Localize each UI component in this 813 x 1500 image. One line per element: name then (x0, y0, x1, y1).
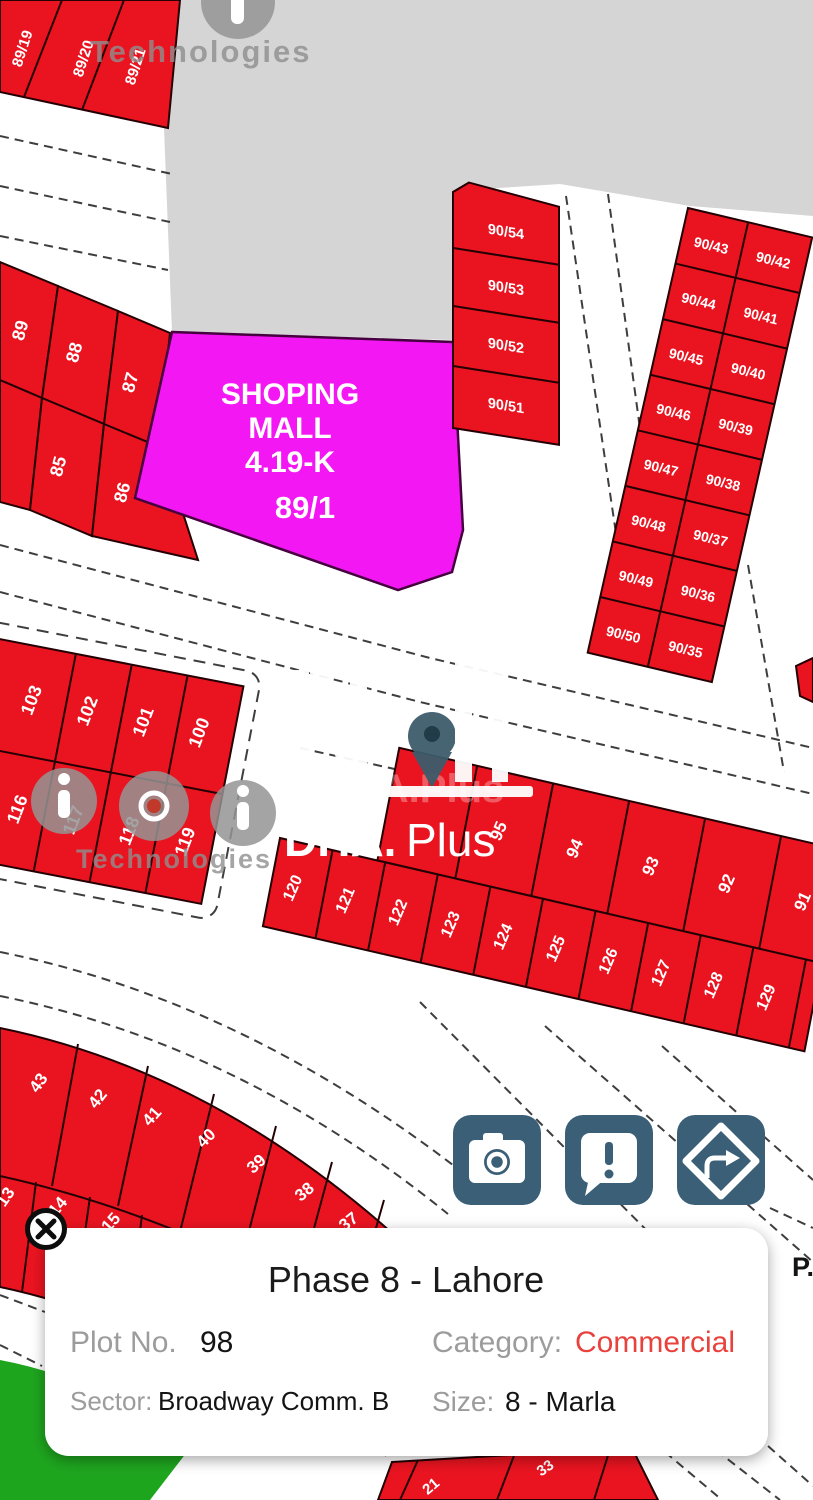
watermark-text: Technologies (76, 844, 272, 874)
plot-column-90-50s[interactable]: 90/54 90/53 90/52 90/51 (453, 180, 559, 445)
plot-no-label: Plot No. (70, 1326, 177, 1359)
dha-wordmark-light: Plus (406, 814, 495, 866)
watermark-text: Technologies (90, 34, 312, 69)
category-value: Commercial (575, 1326, 735, 1359)
plot-info-card: Phase 8 - Lahore Plot No. 98 Category: C… (45, 1228, 768, 1456)
map-screen: 89/19 89/20 89/21 89 88 87 85 86 SHOPING… (0, 0, 813, 1500)
close-card-button[interactable] (28, 1211, 65, 1248)
plot-map[interactable]: 89/19 89/20 89/21 89 88 87 85 86 SHOPING… (0, 0, 813, 1500)
size-value: 8 - Marla (505, 1386, 616, 1417)
sector-value: Broadway Comm. B (158, 1386, 389, 1416)
mall-label: SHOPING (221, 378, 359, 411)
mall-size-label: 4.19-K (245, 446, 335, 479)
camera-button[interactable] (453, 1115, 541, 1205)
road-name-label: P. (792, 1252, 813, 1282)
card-title: Phase 8 - Lahore (268, 1259, 544, 1300)
plot-no-value: 98 (200, 1326, 233, 1359)
mall-label: MALL (248, 412, 331, 445)
mall-plot-number: 89/1 (275, 490, 335, 525)
size-label: Size: (432, 1386, 494, 1417)
action-buttons (453, 1115, 765, 1205)
sector-label: Sector: (70, 1386, 152, 1416)
dha-wordmark-bold: DHA. (284, 814, 396, 866)
category-label: Category: (432, 1326, 562, 1359)
report-button[interactable] (565, 1115, 653, 1205)
camera-icon (469, 1133, 525, 1183)
directions-button[interactable] (677, 1115, 765, 1205)
